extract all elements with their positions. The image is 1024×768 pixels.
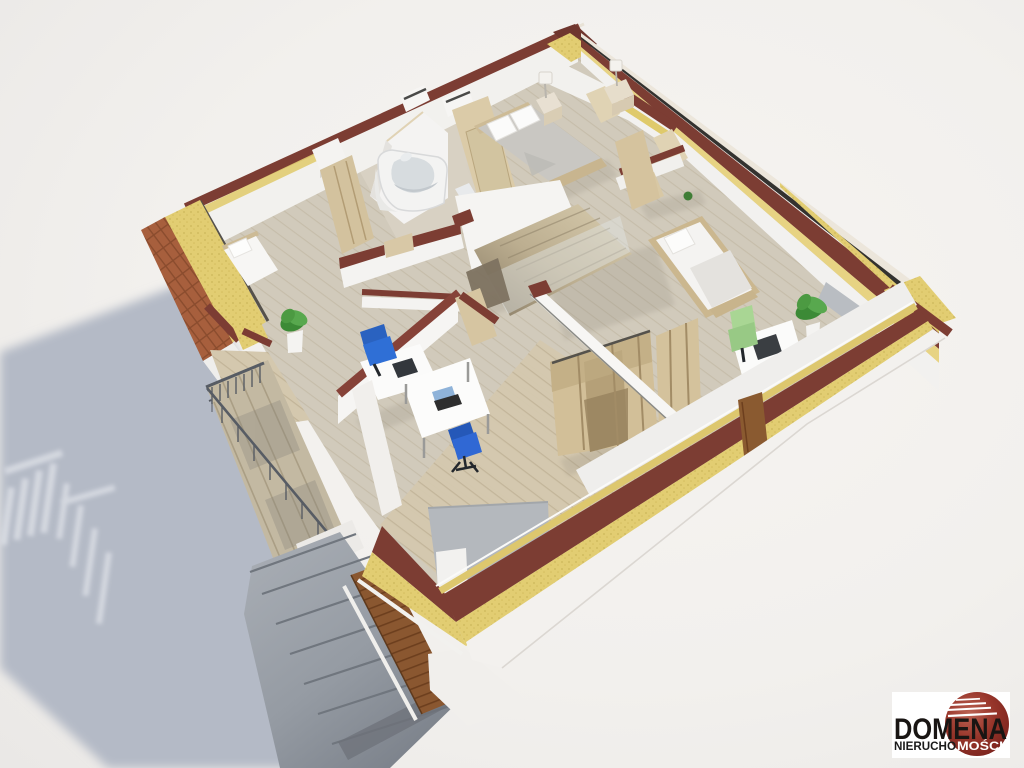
svg-text:NIERUCHO: NIERUCHO: [894, 739, 956, 753]
svg-text:MOŚCI: MOŚCI: [957, 738, 1003, 753]
